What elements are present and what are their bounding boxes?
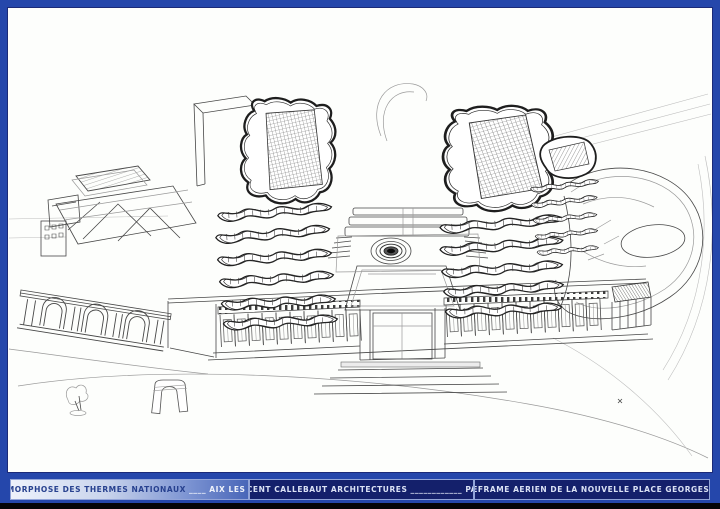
survey-mark (618, 399, 622, 403)
left-organic-tower (215, 96, 338, 330)
title-cell-project: METAMORPHOSE DES THERMES NATIONAUX ____ … (11, 480, 248, 499)
central-terrace (328, 208, 488, 272)
firm-name: VINCENT CALLEBAUT ARCHITECTURES ________… (248, 485, 473, 494)
project-location: ____ AIX LES BAINS (189, 485, 248, 494)
grand-steps (314, 362, 507, 394)
title-cell-drawing: WIREFRAME AERIEN DE LA NOUVELLE PLACE GE… (473, 480, 709, 499)
arch-monument (152, 380, 188, 414)
title-cell-firm: VINCENT CALLEBAUT ARCHITECTURES ________… (248, 480, 473, 499)
wireframe-aerial-drawing (8, 8, 712, 472)
drawing-sheet: METAMORPHOSE DES THERMES NATIONAUX ____ … (0, 0, 720, 509)
drawing-canvas (7, 7, 713, 473)
entrance-pavilion (345, 266, 460, 360)
circular-fountain (371, 238, 411, 264)
drawing-title: WIREFRAME AERIEN DE LA NOUVELLE PLACE GE… (473, 485, 709, 494)
ground-road-curves (9, 84, 712, 458)
title-block: METAMORPHOSE DES THERMES NATIONAUX ____ … (10, 479, 710, 500)
project-name: METAMORPHOSE DES THERMES NATIONAUX (11, 485, 186, 494)
sheet-bottom-strip (0, 503, 720, 509)
tree-sketch (66, 385, 88, 416)
